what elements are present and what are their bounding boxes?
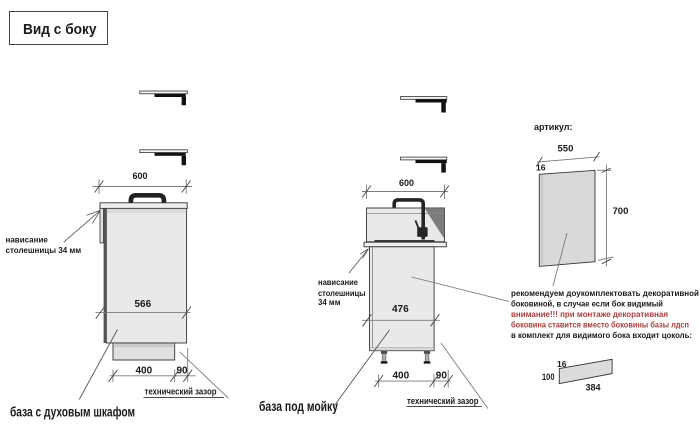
svg-text:рекомендуем доукомплектовать д: рекомендуем доукомплектовать декоративно… bbox=[511, 288, 699, 298]
svg-text:в комплект для видимого бока в: в комплект для видимого бока входит цоко… bbox=[511, 330, 692, 340]
svg-text:700: 700 bbox=[613, 206, 629, 217]
svg-text:476: 476 bbox=[392, 304, 409, 315]
svg-text:артикул:: артикул: bbox=[534, 122, 572, 132]
svg-text:нависание: нависание bbox=[318, 278, 359, 287]
svg-text:столешницы: столешницы bbox=[318, 289, 366, 298]
svg-text:34 мм: 34 мм bbox=[318, 298, 341, 307]
svg-text:столешницы 34 мм: столешницы 34 мм bbox=[6, 246, 82, 255]
svg-text:боковиной, в случае если бок в: боковиной, в случае если бок видимый bbox=[511, 299, 663, 309]
svg-text:боковина ставится вместо боков: боковина ставится вместо боковины базы л… bbox=[511, 320, 689, 330]
svg-text:технический зазор: технический зазор bbox=[407, 396, 479, 407]
svg-text:внимание!!! при монтаже декора: внимание!!! при монтаже декоративная bbox=[511, 309, 668, 319]
svg-text:16: 16 bbox=[536, 163, 546, 173]
svg-text:600: 600 bbox=[133, 171, 148, 181]
svg-text:400: 400 bbox=[393, 371, 410, 382]
svg-text:550: 550 bbox=[558, 143, 574, 154]
svg-text:Вид с боку: Вид с боку bbox=[23, 21, 97, 38]
svg-text:384: 384 bbox=[586, 383, 601, 393]
svg-text:технический зазор: технический зазор bbox=[145, 387, 217, 398]
svg-text:400: 400 bbox=[136, 365, 153, 376]
svg-text:600: 600 bbox=[399, 178, 414, 188]
svg-text:нависание: нависание bbox=[6, 236, 49, 245]
svg-text:566: 566 bbox=[135, 299, 152, 310]
svg-text:база с духовым шкафом: база с духовым шкафом bbox=[10, 405, 135, 420]
svg-text:база под мойку: база под мойку bbox=[259, 399, 338, 414]
svg-text:100: 100 bbox=[542, 372, 555, 382]
